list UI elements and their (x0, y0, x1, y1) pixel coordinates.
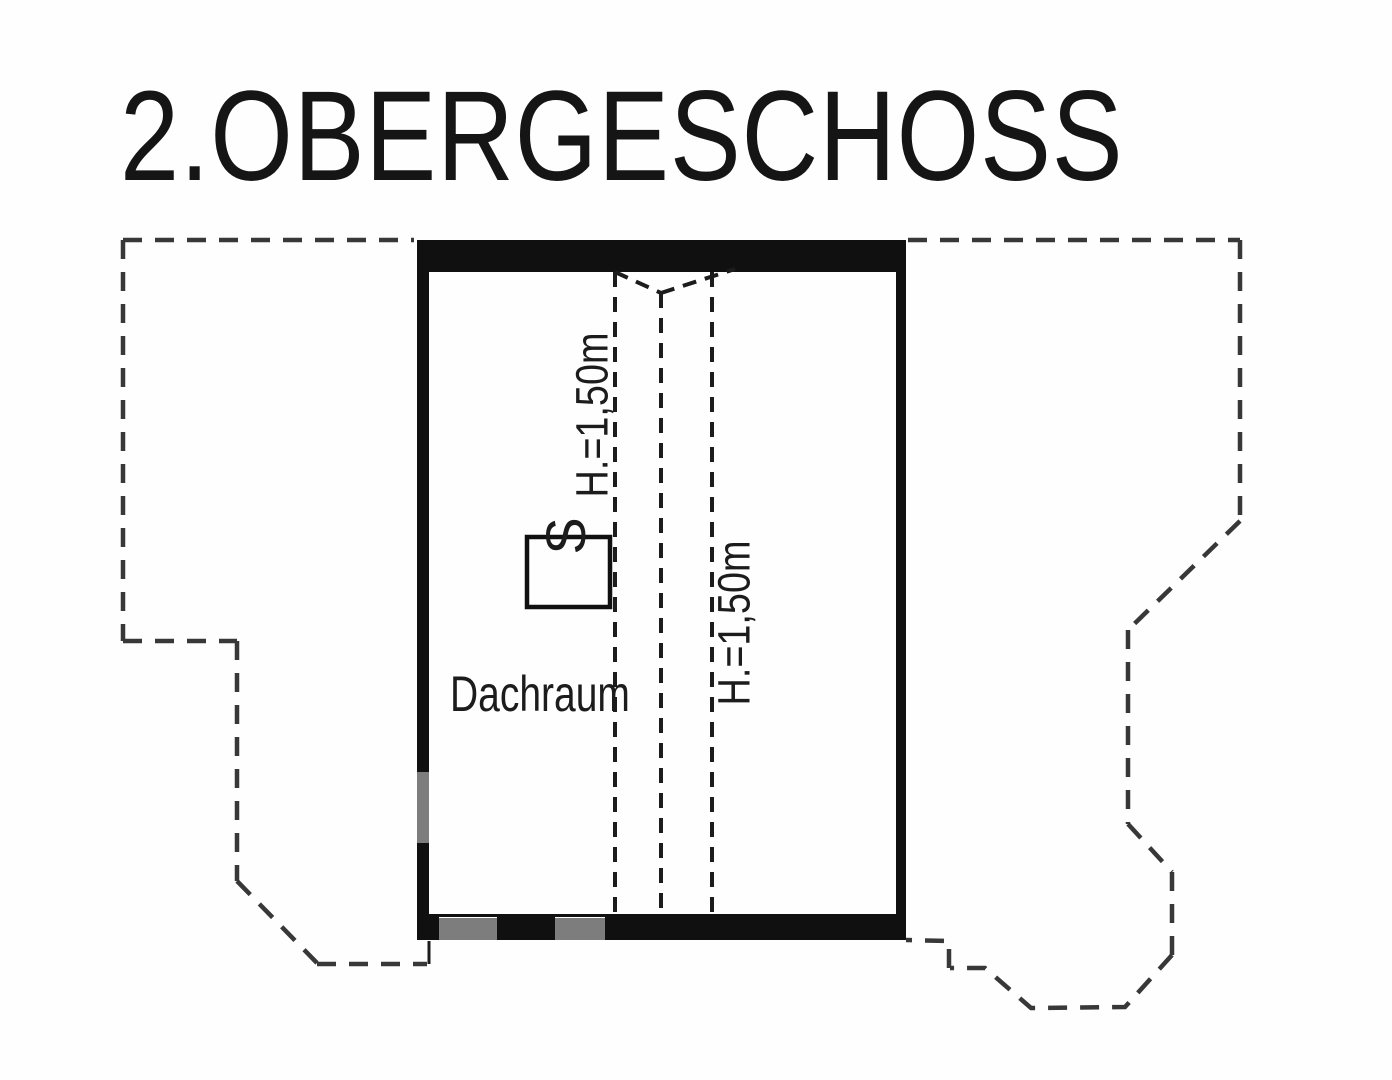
roof-outline-right-diag2 (1128, 824, 1172, 872)
left-wall-opening (417, 772, 429, 843)
bottom-wall-seg-1 (417, 917, 439, 940)
height-annotation-right: H.=1,50m (712, 541, 757, 706)
right-wall (896, 272, 906, 940)
bottom-wall-face-line (429, 914, 896, 917)
room-label-dachraum: Dachraum (450, 669, 630, 719)
floorplan-page: 2.OBERGESCHOSS Dachraum H.=1,50m H.=1,50… (0, 0, 1392, 1080)
height-annotation-left: H.=1,50m (570, 333, 615, 498)
roof-outline-bay-step (906, 940, 949, 968)
roof-outline-left-diag (237, 881, 317, 963)
ridge-v-right (661, 269, 735, 293)
left-wall-lower (417, 843, 429, 918)
chimney-flue-mark: S (538, 517, 594, 554)
bottom-wall-seg-4 (555, 918, 605, 940)
left-wall-upper (417, 242, 429, 772)
roof-outline-bay (950, 955, 1172, 1008)
bottom-wall-seg-2 (439, 918, 497, 940)
bottom-wall-seg-3 (497, 917, 555, 940)
ridge-v-left (615, 272, 661, 293)
roof-outline-right-diag1 (1128, 521, 1240, 630)
top-wall (417, 240, 906, 272)
bottom-wall-seg-5 (605, 917, 906, 940)
page-title: 2.OBERGESCHOSS (120, 73, 1123, 201)
